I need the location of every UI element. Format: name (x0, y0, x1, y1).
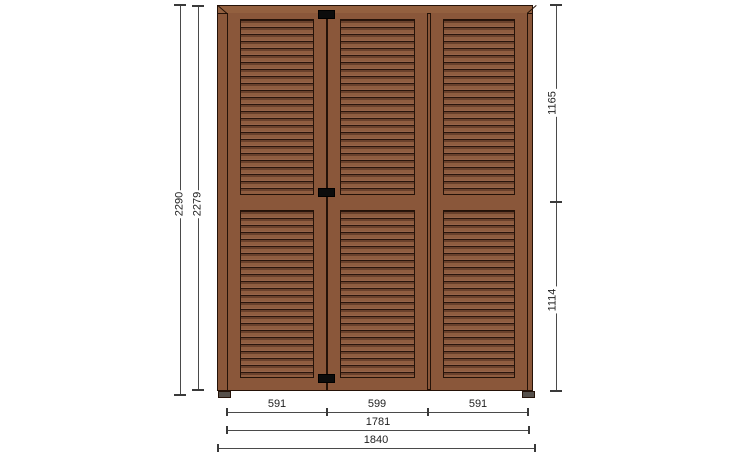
dim-label-leaves-width: 1781 (364, 417, 392, 428)
door-leaf-right (430, 13, 528, 390)
dim-line-overall-width (218, 448, 535, 449)
louver-panel-lower (240, 210, 314, 378)
dim-line-leaf-widths (227, 412, 529, 413)
hinge-top (318, 10, 335, 19)
louvered-door-elevation-drawing: 2290 2279 1165 1114 591 599 591 1781 184… (0, 0, 730, 457)
dim-tick (217, 444, 219, 452)
dim-tick (326, 408, 328, 416)
dim-tick (226, 426, 228, 434)
hinge-middle (318, 188, 335, 197)
door-leaves (227, 13, 528, 390)
dim-tick (192, 5, 204, 7)
dim-tick (192, 389, 204, 391)
dim-label-upper-section-height: 1165 (547, 89, 560, 117)
dim-label-leaf-width-1: 591 (266, 399, 288, 410)
dim-tick (534, 444, 536, 452)
dim-tick (527, 408, 529, 416)
dim-tick (550, 201, 562, 203)
dim-tick (174, 4, 186, 6)
dim-line-right-sections (556, 5, 557, 392)
dim-tick (528, 426, 530, 434)
dim-tick (550, 4, 562, 6)
dim-tick (427, 408, 429, 416)
dim-label-leaf-height: 2279 (192, 190, 205, 218)
dim-label-overall-width: 1840 (362, 435, 390, 446)
dim-tick (226, 408, 228, 416)
louver-panel-lower (340, 210, 415, 378)
louver-panel-lower (443, 210, 515, 378)
louver-panel-upper (240, 19, 314, 195)
louver-panel-upper (340, 19, 415, 195)
dim-tick (174, 394, 186, 396)
dim-label-leaf-width-2: 599 (366, 399, 388, 410)
dim-tick (550, 390, 562, 392)
dim-line-leaves-width (227, 430, 529, 431)
door-leaf-center (327, 13, 428, 390)
door-leaf-left (227, 13, 327, 390)
dim-label-overall-height: 2290 (174, 190, 187, 218)
foot-right (522, 391, 535, 398)
dim-label-lower-section-height: 1114 (547, 287, 560, 314)
foot-left (218, 391, 231, 398)
dim-label-leaf-width-3: 591 (467, 399, 489, 410)
louver-panel-upper (443, 19, 515, 195)
hinge-bottom (318, 374, 335, 383)
